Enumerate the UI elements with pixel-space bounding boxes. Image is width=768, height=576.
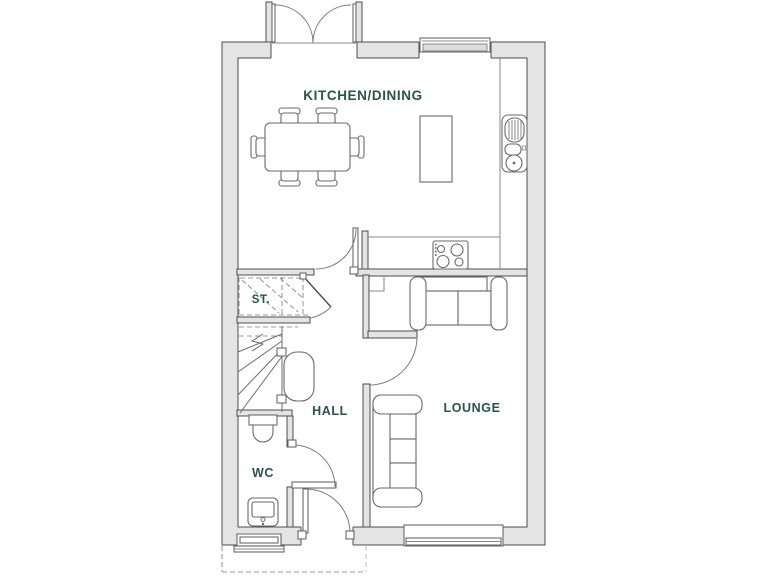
dining-table — [265, 123, 350, 171]
hob — [433, 241, 468, 269]
door-jamb-block — [298, 531, 306, 539]
door-leaf — [303, 276, 331, 307]
storage-cupboard — [239, 277, 308, 316]
door-jamb-block — [350, 267, 358, 274]
door-leaf — [292, 482, 336, 488]
newel-post — [277, 348, 286, 356]
sofa-cushion — [458, 291, 491, 325]
kitchen-dining-label: KITCHEN/DINING — [303, 88, 422, 103]
wc-basin — [248, 498, 278, 526]
wc-window — [234, 534, 284, 552]
storage-door — [300, 273, 331, 318]
sofa-three-seater — [373, 395, 422, 507]
kitchen-window — [420, 38, 490, 52]
sofa-arm — [373, 395, 422, 414]
storage-bottom-wall — [237, 317, 310, 323]
drain — [513, 162, 516, 165]
counter-return-wall — [362, 231, 368, 269]
door-swing-arc — [316, 229, 356, 269]
door-swing-arc — [275, 5, 313, 43]
stairs — [238, 326, 314, 413]
door-swing-arc — [311, 307, 331, 318]
kitchen-south-wall-right — [356, 269, 527, 276]
kitchen-door — [316, 228, 358, 274]
door-leaf — [368, 331, 417, 338]
tap — [523, 146, 526, 150]
lounge-window — [404, 525, 503, 546]
drain — [262, 523, 264, 525]
door-leaf — [303, 489, 308, 533]
floor-plan-svg: KITCHEN/DINING ST. HALL WC LOUNGE — [0, 0, 768, 576]
door-jamb-block — [346, 531, 354, 539]
wc-label: WC — [252, 466, 274, 480]
hob-knob — [435, 254, 437, 256]
sofa-cushion — [390, 414, 416, 439]
sofa-arm — [373, 488, 422, 507]
wc-door — [288, 440, 336, 488]
cistern — [249, 415, 277, 425]
sink-unit — [502, 115, 527, 172]
lounge-label: LOUNGE — [443, 401, 500, 415]
door-jamb-block — [300, 273, 306, 279]
sofa-arm — [491, 277, 507, 330]
dining-set — [251, 108, 364, 186]
kitchen-island — [420, 116, 452, 182]
sofa-cushion — [425, 291, 458, 325]
lounge-door — [368, 331, 417, 385]
tap — [261, 518, 265, 522]
sofa-arm — [410, 277, 426, 330]
hob-knob — [435, 244, 437, 246]
storage-label: ST. — [252, 294, 270, 306]
hall-lounge-wall-lower — [363, 384, 370, 527]
handrail — [284, 352, 314, 401]
newel-post — [277, 395, 286, 403]
hall-lounge-wall-upper — [363, 275, 369, 338]
french-doors — [266, 2, 362, 43]
hob-knob — [435, 251, 437, 253]
hob-knob — [435, 247, 437, 249]
door-swing-arc — [369, 337, 417, 385]
door-jamb — [266, 2, 272, 42]
door-leaf — [272, 4, 275, 42]
door-leaf — [353, 4, 356, 42]
door-swing-arc — [293, 445, 335, 487]
wc-east-wall-lower — [287, 487, 293, 527]
door-swing-arc — [313, 5, 351, 43]
sofa-back — [420, 277, 487, 291]
door-jamb-block — [288, 440, 296, 447]
wc-toilet — [249, 415, 277, 442]
hall-label: HALL — [312, 404, 348, 418]
sofa-cushion — [390, 439, 416, 463]
toilet-bowl — [253, 425, 273, 442]
door-jamb — [356, 2, 362, 42]
floor-plan: KITCHEN/DINING ST. HALL WC LOUNGE — [0, 0, 768, 576]
sofa-cushion — [390, 463, 416, 488]
wall-pier-line — [369, 276, 384, 291]
sofa-two-seater — [410, 277, 507, 330]
